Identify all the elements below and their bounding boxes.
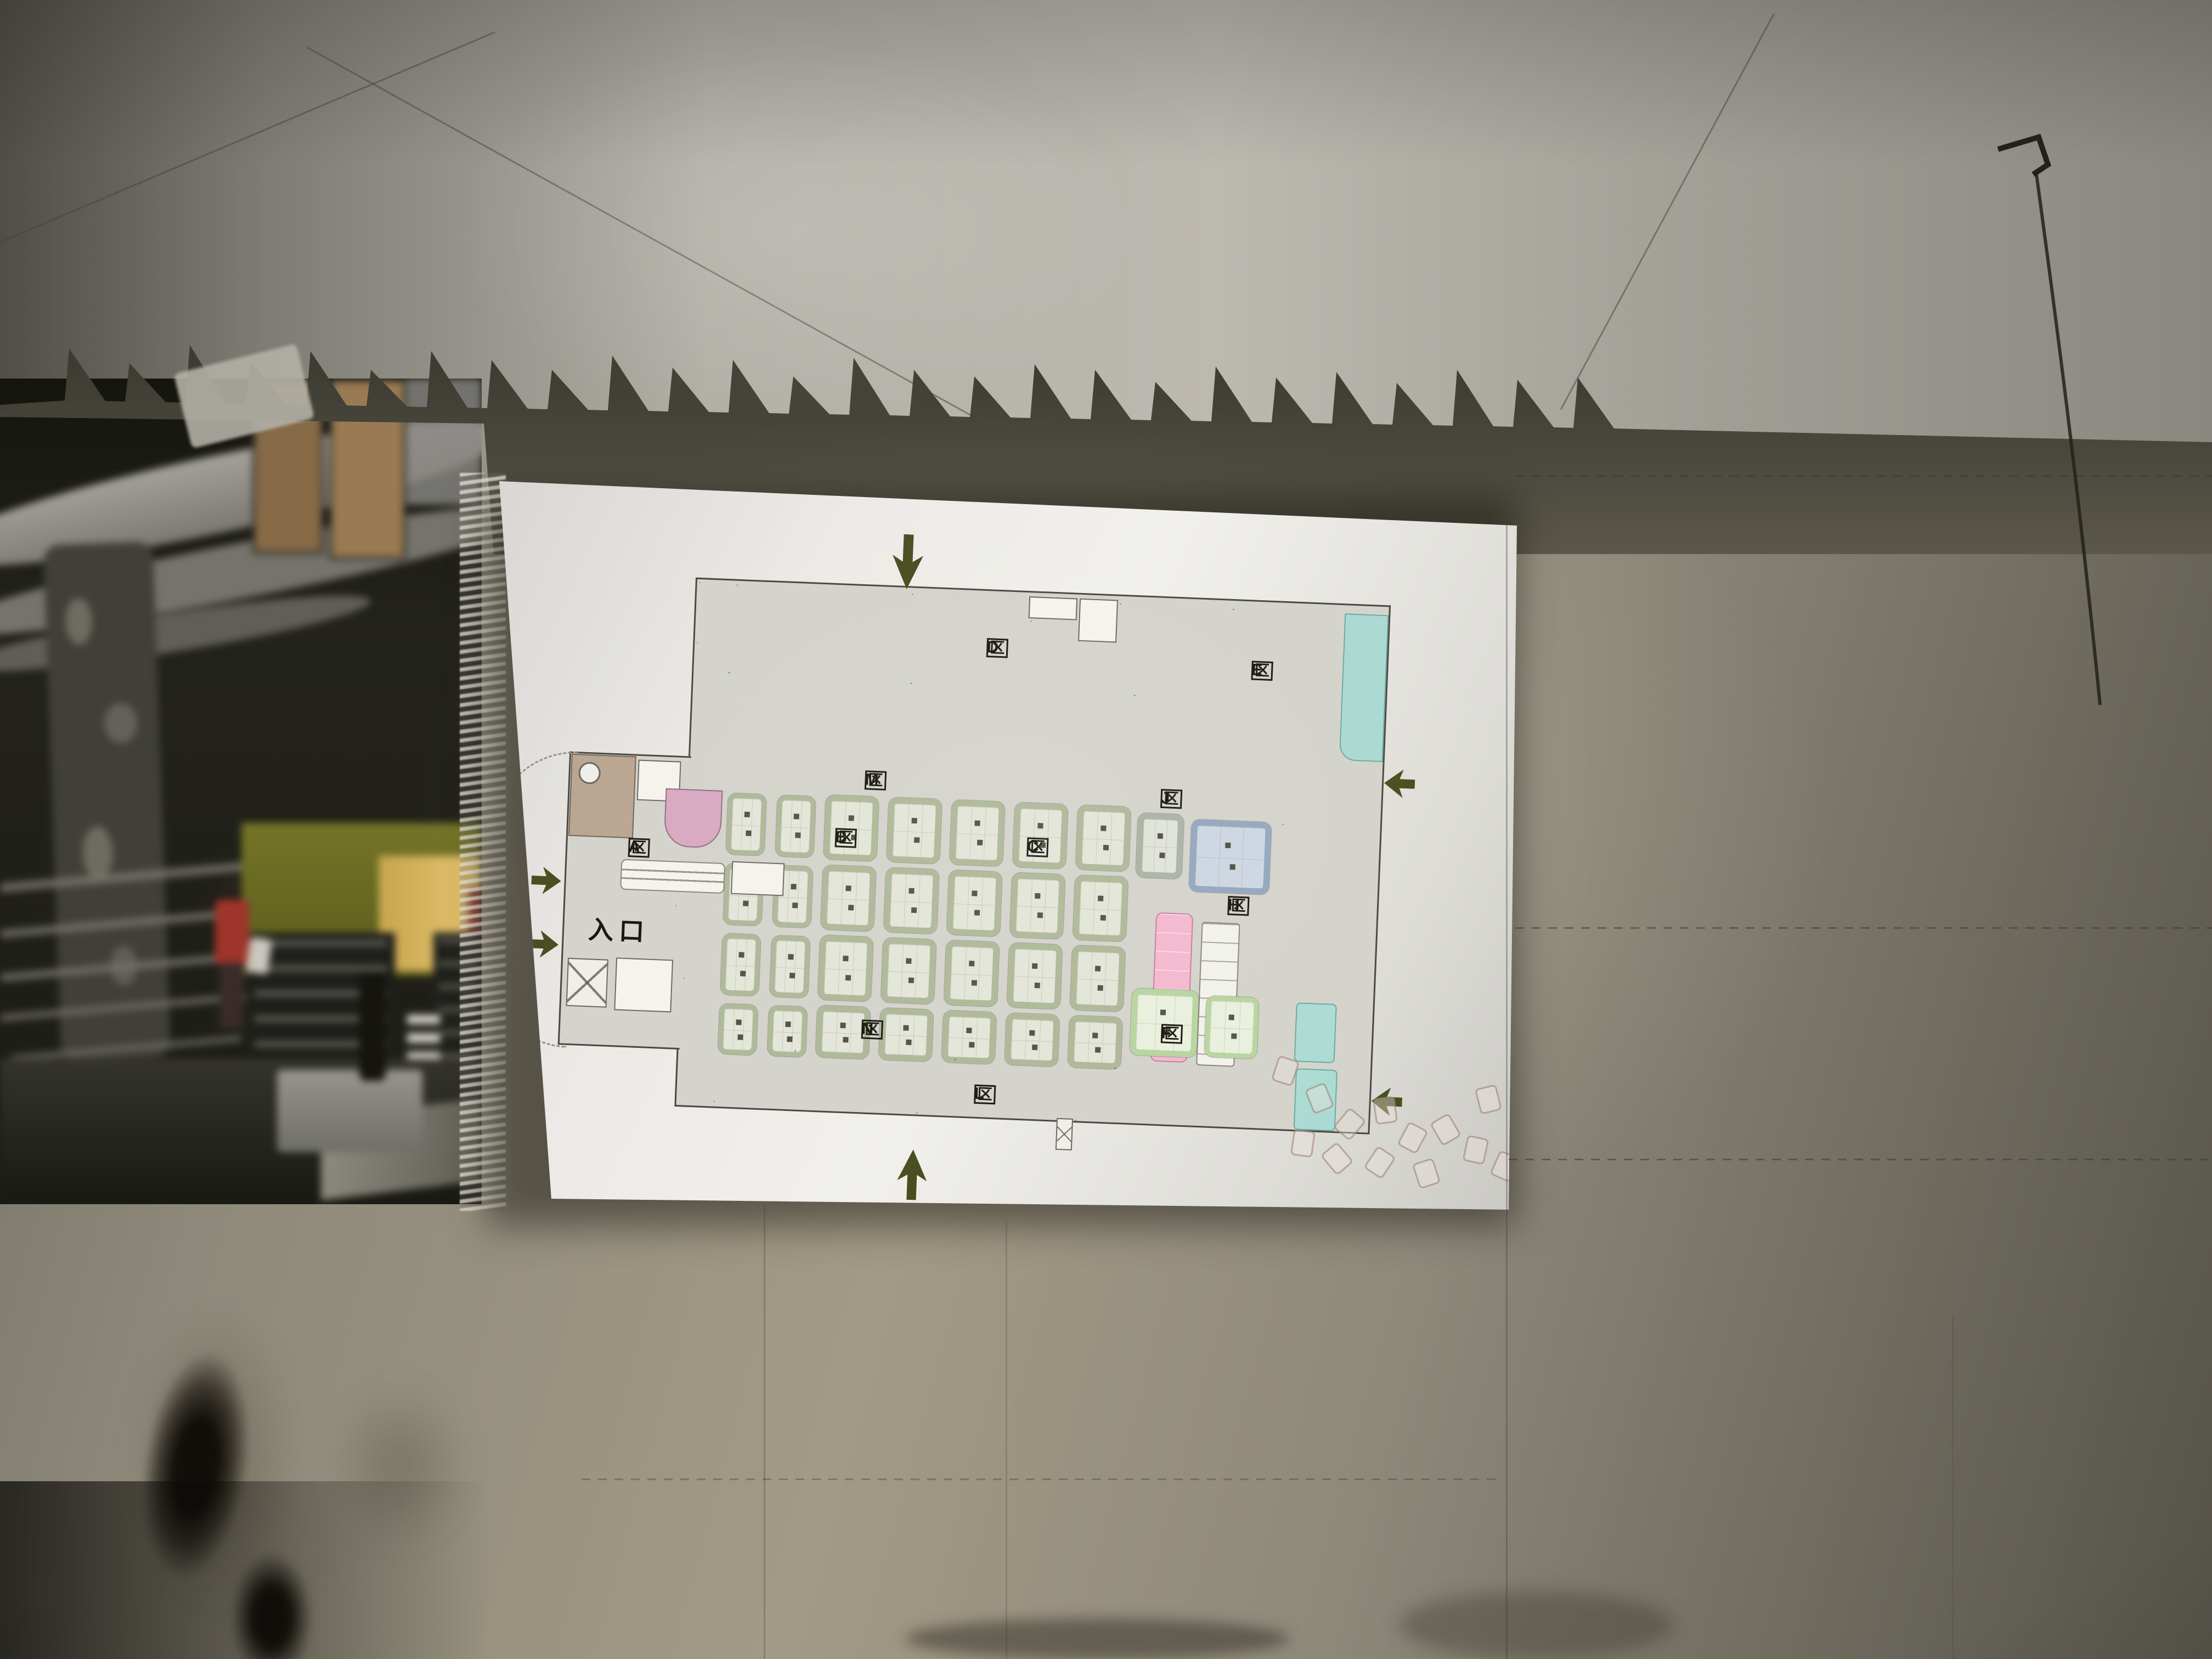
hanging-wire [0,0,2212,1659]
photo-of-floorplan-sign: A区 B区 C区 D区 E区 F区 H区 J区 L区 M区 N区 入口 [0,0,2212,1659]
